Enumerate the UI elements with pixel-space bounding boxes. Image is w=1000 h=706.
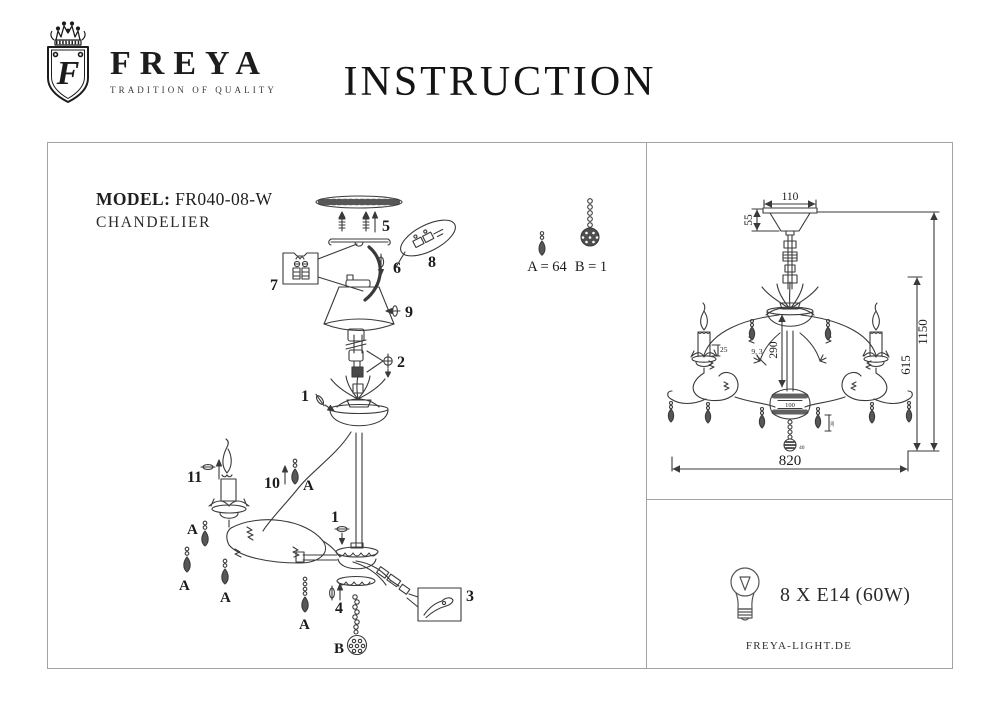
model-block: MODEL: FR040-08-W CHANDELIER bbox=[96, 187, 272, 233]
dim-label-820: 820 bbox=[779, 453, 802, 469]
arm-left bbox=[668, 303, 780, 428]
callout-9: 9 bbox=[405, 304, 413, 321]
callout-1-body: 1 bbox=[331, 509, 339, 526]
crystal-label-a: A bbox=[179, 578, 190, 594]
callout-1-dome: 1 bbox=[301, 388, 309, 405]
model-label: MODEL: bbox=[96, 189, 170, 209]
callout-4: 4 bbox=[335, 600, 343, 617]
screw-2 bbox=[367, 351, 392, 377]
dimension-drawing: 110 55 290 9, 3 25 100 40 38 615 1150 82… bbox=[646, 143, 952, 499]
screw-6 bbox=[378, 254, 383, 275]
arm-crystals bbox=[184, 521, 308, 612]
crystal-10 bbox=[283, 459, 299, 484]
callout-8: 8 bbox=[428, 254, 436, 271]
crystal-label-b: B bbox=[334, 641, 344, 657]
leaf-crown bbox=[331, 375, 385, 407]
count-a: A = 64 bbox=[527, 259, 567, 275]
dim-55 bbox=[752, 209, 779, 231]
mounting-screws bbox=[339, 212, 378, 232]
dim-label-25: 25 bbox=[720, 345, 728, 354]
socket-parts bbox=[377, 567, 410, 595]
callout-6: 6 bbox=[393, 260, 401, 277]
diagram-frame: 5 6 7 8 9 2 1 11 10 1 4 3 A A A A A B A … bbox=[47, 142, 953, 669]
dim-label-290: 290 bbox=[768, 341, 780, 359]
chain-and-ball bbox=[348, 595, 367, 655]
instruction-sheet: F FREYA TRADITION OF QUALITY INSTRUCTION bbox=[0, 0, 1000, 706]
arm-right bbox=[800, 303, 912, 428]
dim-label-9-3: 9, 3 bbox=[751, 347, 763, 356]
ball-front-view bbox=[784, 420, 796, 451]
central-body bbox=[296, 543, 391, 586]
bulb-spec-text: 8 X E14 (60W) bbox=[780, 584, 910, 607]
bulb-icon bbox=[728, 566, 762, 624]
dim-label-615: 615 bbox=[898, 355, 913, 375]
crystal-label-a: A bbox=[187, 522, 198, 538]
crystal-label-a: A bbox=[303, 478, 314, 494]
pliers-detail-box bbox=[407, 588, 461, 621]
count-b: B = 1 bbox=[575, 259, 607, 275]
screw-4 bbox=[330, 584, 343, 600]
stem-couplings bbox=[346, 329, 366, 377]
suspension-hook bbox=[365, 247, 380, 300]
callout-7: 7 bbox=[270, 277, 278, 294]
candle-assembly bbox=[209, 439, 249, 527]
dim-label-40: 40 bbox=[799, 445, 805, 451]
dim-label-1150: 1150 bbox=[915, 319, 930, 345]
callout-2: 2 bbox=[397, 354, 405, 371]
screw-11 bbox=[201, 460, 222, 479]
callout-3: 3 bbox=[466, 588, 474, 605]
crown-and-dome bbox=[762, 282, 818, 391]
callout-10: 10 bbox=[264, 475, 280, 492]
callout-11: 11 bbox=[187, 469, 202, 486]
screw-1-body bbox=[335, 527, 349, 544]
ceiling-chain-bar bbox=[316, 196, 402, 208]
dim-label-100: 100 bbox=[785, 402, 795, 409]
mounting-bracket bbox=[329, 239, 391, 246]
page-title: INSTRUCTION bbox=[0, 58, 1000, 106]
website-text: FREYA-LIGHT.DE bbox=[646, 640, 952, 652]
model-value: FR040-08-W bbox=[175, 189, 272, 209]
crystal-label-a: A bbox=[299, 617, 310, 633]
callout-5: 5 bbox=[382, 218, 390, 235]
junction-box-detail bbox=[283, 244, 363, 291]
stem bbox=[783, 235, 797, 289]
crystal-label-a: A bbox=[220, 590, 231, 606]
screw-9 bbox=[386, 306, 400, 316]
bulb-spec-section: 8 X E14 (60W) FREYA-LIGHT.DE bbox=[646, 500, 952, 668]
dim-label-55: 55 bbox=[743, 214, 755, 226]
model-type: CHANDELIER bbox=[96, 212, 272, 234]
dim-label-38: 38 bbox=[830, 421, 836, 427]
dim-label-110: 110 bbox=[782, 191, 799, 203]
crystal-count-icons bbox=[539, 199, 599, 256]
scroll-arm bbox=[227, 520, 340, 563]
